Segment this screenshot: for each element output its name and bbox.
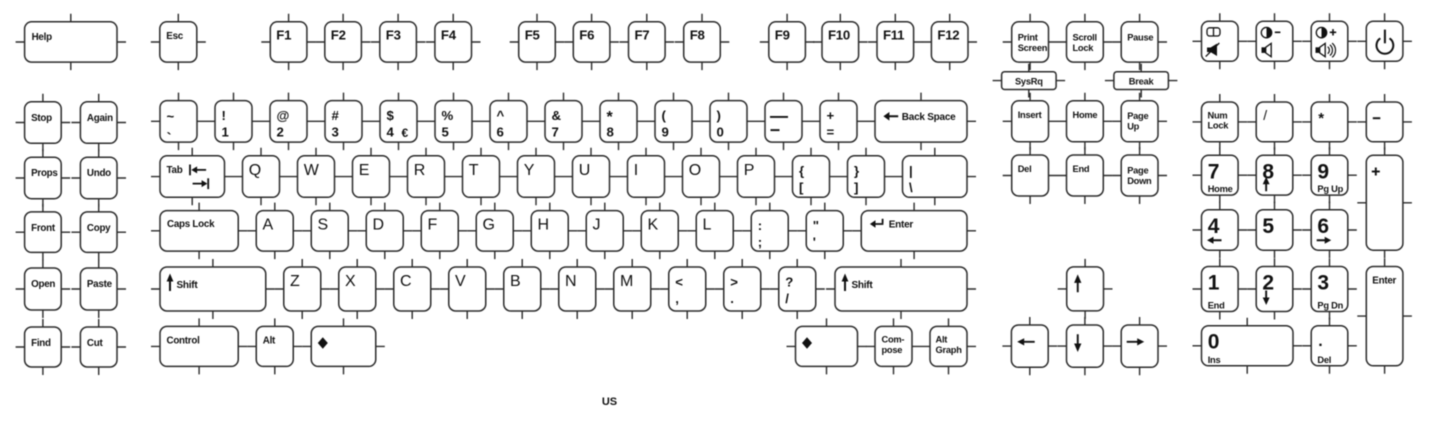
svg-text:Page: Page — [1127, 165, 1148, 175]
svg-text:K: K — [648, 217, 659, 234]
svg-text:H: H — [538, 217, 550, 234]
svg-text:Undo: Undo — [87, 168, 111, 179]
svg-text:3: 3 — [332, 125, 339, 140]
svg-text:Pause: Pause — [1127, 32, 1153, 42]
svg-text:Control: Control — [167, 335, 201, 346]
svg-text:I: I — [634, 162, 638, 179]
svg-text:Again: Again — [87, 113, 113, 124]
svg-text:': ' — [813, 235, 816, 250]
svg-text:}: } — [854, 163, 859, 178]
svg-text:): ) — [717, 108, 721, 123]
svg-text:Alt: Alt — [936, 334, 948, 344]
svg-text:=: = — [827, 125, 835, 140]
svg-text:Cut: Cut — [87, 338, 104, 349]
svg-text:Find: Find — [31, 338, 51, 349]
svg-text:": " — [813, 218, 819, 233]
svg-text:Enter: Enter — [1372, 276, 1396, 287]
svg-text:C: C — [400, 273, 412, 290]
svg-text:Insert: Insert — [1018, 110, 1042, 120]
svg-text:Print: Print — [1018, 32, 1038, 42]
svg-text:|: | — [909, 163, 912, 178]
svg-text:Back Space: Back Space — [902, 112, 956, 123]
svg-text:;: ; — [758, 235, 762, 250]
svg-text:Y: Y — [524, 162, 535, 179]
svg-text:Help: Help — [32, 32, 52, 43]
svg-text:Paste: Paste — [87, 279, 113, 290]
svg-text:J: J — [593, 217, 601, 234]
svg-text:Lock: Lock — [1208, 121, 1230, 131]
svg-text:N: N — [565, 273, 577, 290]
svg-text:{: { — [799, 163, 804, 178]
svg-text:Home: Home — [1073, 110, 1098, 120]
svg-text:Screen: Screen — [1018, 43, 1048, 53]
svg-text:R: R — [414, 162, 426, 179]
svg-text:Props: Props — [31, 168, 58, 179]
svg-text:<: < — [675, 275, 683, 290]
svg-text:V: V — [455, 273, 466, 290]
svg-text:Up: Up — [1127, 122, 1139, 132]
svg-text:Del: Del — [1018, 164, 1032, 174]
svg-text:Tab: Tab — [167, 165, 183, 176]
svg-text:Graph: Graph — [936, 345, 963, 355]
svg-text:Break: Break — [1129, 77, 1155, 87]
svg-text:US: US — [602, 396, 617, 408]
svg-text:B: B — [510, 273, 521, 290]
svg-text:Shift: Shift — [852, 280, 874, 291]
svg-text:F12: F12 — [937, 27, 959, 42]
svg-text:Stop: Stop — [31, 113, 52, 124]
svg-text:Ins: Ins — [1208, 355, 1221, 365]
svg-text:F: F — [428, 217, 438, 234]
svg-text:^: ^ — [497, 108, 505, 123]
svg-text:?: ? — [785, 275, 793, 290]
svg-text:E: E — [359, 162, 370, 179]
svg-text:1: 1 — [222, 125, 229, 140]
svg-text:Lock: Lock — [1073, 43, 1095, 53]
svg-text:8: 8 — [607, 125, 614, 140]
svg-text:Scroll: Scroll — [1073, 32, 1097, 42]
svg-text:F10: F10 — [828, 27, 850, 42]
svg-text:F3: F3 — [386, 27, 401, 42]
svg-text:F4: F4 — [441, 27, 457, 42]
svg-text:Z: Z — [290, 273, 300, 290]
svg-text:Com-: Com- — [882, 334, 905, 344]
svg-text:2: 2 — [277, 125, 284, 140]
svg-text:S: S — [318, 217, 329, 234]
svg-text::: : — [758, 218, 762, 233]
svg-text:€: € — [402, 126, 409, 140]
svg-text:L: L — [703, 217, 712, 234]
svg-text:6: 6 — [497, 125, 504, 140]
svg-text:*: * — [1318, 110, 1324, 127]
svg-text:6: 6 — [1317, 215, 1329, 238]
svg-text:Esc: Esc — [166, 31, 183, 42]
svg-text:D: D — [373, 217, 385, 234]
svg-text:4: 4 — [1208, 215, 1220, 238]
svg-text:3: 3 — [1317, 272, 1329, 295]
svg-text:Home: Home — [1208, 184, 1233, 194]
svg-text:2: 2 — [1262, 272, 1274, 295]
svg-text:F1: F1 — [276, 27, 291, 42]
svg-text:#: # — [332, 108, 340, 123]
svg-text:>: > — [730, 275, 738, 290]
svg-text:+: + — [827, 108, 835, 123]
svg-text:4: 4 — [387, 125, 395, 140]
svg-text:\: \ — [909, 180, 913, 195]
svg-text:9: 9 — [662, 125, 669, 140]
svg-text:End: End — [1208, 301, 1225, 311]
svg-text:Del: Del — [1317, 355, 1331, 365]
svg-text:F2: F2 — [331, 27, 346, 42]
svg-text:G: G — [483, 217, 495, 234]
svg-text:7: 7 — [1208, 160, 1220, 183]
svg-text:0: 0 — [1208, 331, 1220, 354]
svg-text:&: & — [552, 108, 562, 123]
svg-text:Down: Down — [1127, 176, 1152, 186]
svg-text:9: 9 — [1317, 160, 1329, 183]
svg-text:*: * — [607, 109, 614, 126]
svg-text:Q: Q — [249, 162, 261, 179]
svg-text:pose: pose — [882, 345, 903, 355]
svg-text:Enter: Enter — [889, 220, 914, 231]
svg-text:8: 8 — [1262, 160, 1274, 183]
svg-text:Copy: Copy — [87, 223, 111, 234]
svg-text:/: / — [1263, 107, 1267, 123]
svg-text:Caps Lock: Caps Lock — [167, 219, 215, 230]
svg-text:`: ` — [167, 130, 172, 147]
svg-text:F8: F8 — [690, 27, 705, 42]
svg-text:P: P — [744, 162, 755, 179]
svg-text:Num: Num — [1208, 111, 1228, 121]
svg-text:Pg Up: Pg Up — [1317, 184, 1343, 194]
svg-text:SysRq: SysRq — [1015, 77, 1043, 87]
svg-text:0: 0 — [717, 125, 724, 140]
svg-text:F11: F11 — [883, 27, 904, 42]
svg-text:,: , — [675, 291, 678, 306]
svg-text:1: 1 — [1208, 272, 1220, 295]
svg-text:$: $ — [387, 108, 395, 123]
svg-text:W: W — [304, 162, 320, 179]
svg-text:M: M — [620, 273, 633, 290]
svg-text:U: U — [579, 162, 591, 179]
svg-text:X: X — [345, 273, 356, 290]
svg-text:Shift: Shift — [177, 280, 199, 291]
svg-text:!: ! — [222, 108, 226, 123]
svg-text:]: ] — [854, 180, 858, 195]
svg-text:O: O — [689, 162, 701, 179]
svg-text:F5: F5 — [525, 27, 540, 42]
svg-text:5: 5 — [1262, 215, 1274, 238]
svg-text:T: T — [469, 162, 479, 179]
svg-text:.: . — [730, 291, 733, 306]
svg-text:F6: F6 — [579, 27, 594, 42]
svg-text:Open: Open — [31, 279, 55, 290]
svg-text:F9: F9 — [775, 27, 790, 42]
svg-text:%: % — [442, 108, 454, 123]
svg-text:F7: F7 — [635, 27, 650, 42]
svg-text:End: End — [1073, 164, 1090, 174]
svg-text:~: ~ — [167, 109, 175, 124]
svg-text:/: / — [785, 291, 789, 306]
svg-text:5: 5 — [442, 125, 449, 140]
svg-text:Front: Front — [31, 223, 56, 234]
svg-text:Pg Dn: Pg Dn — [1317, 301, 1343, 311]
svg-text:Page: Page — [1127, 111, 1148, 121]
svg-text:@: @ — [277, 108, 290, 123]
svg-text:.: . — [1318, 333, 1322, 350]
svg-text:A: A — [263, 217, 274, 234]
svg-text:Alt: Alt — [263, 335, 276, 346]
svg-text:7: 7 — [552, 125, 559, 140]
